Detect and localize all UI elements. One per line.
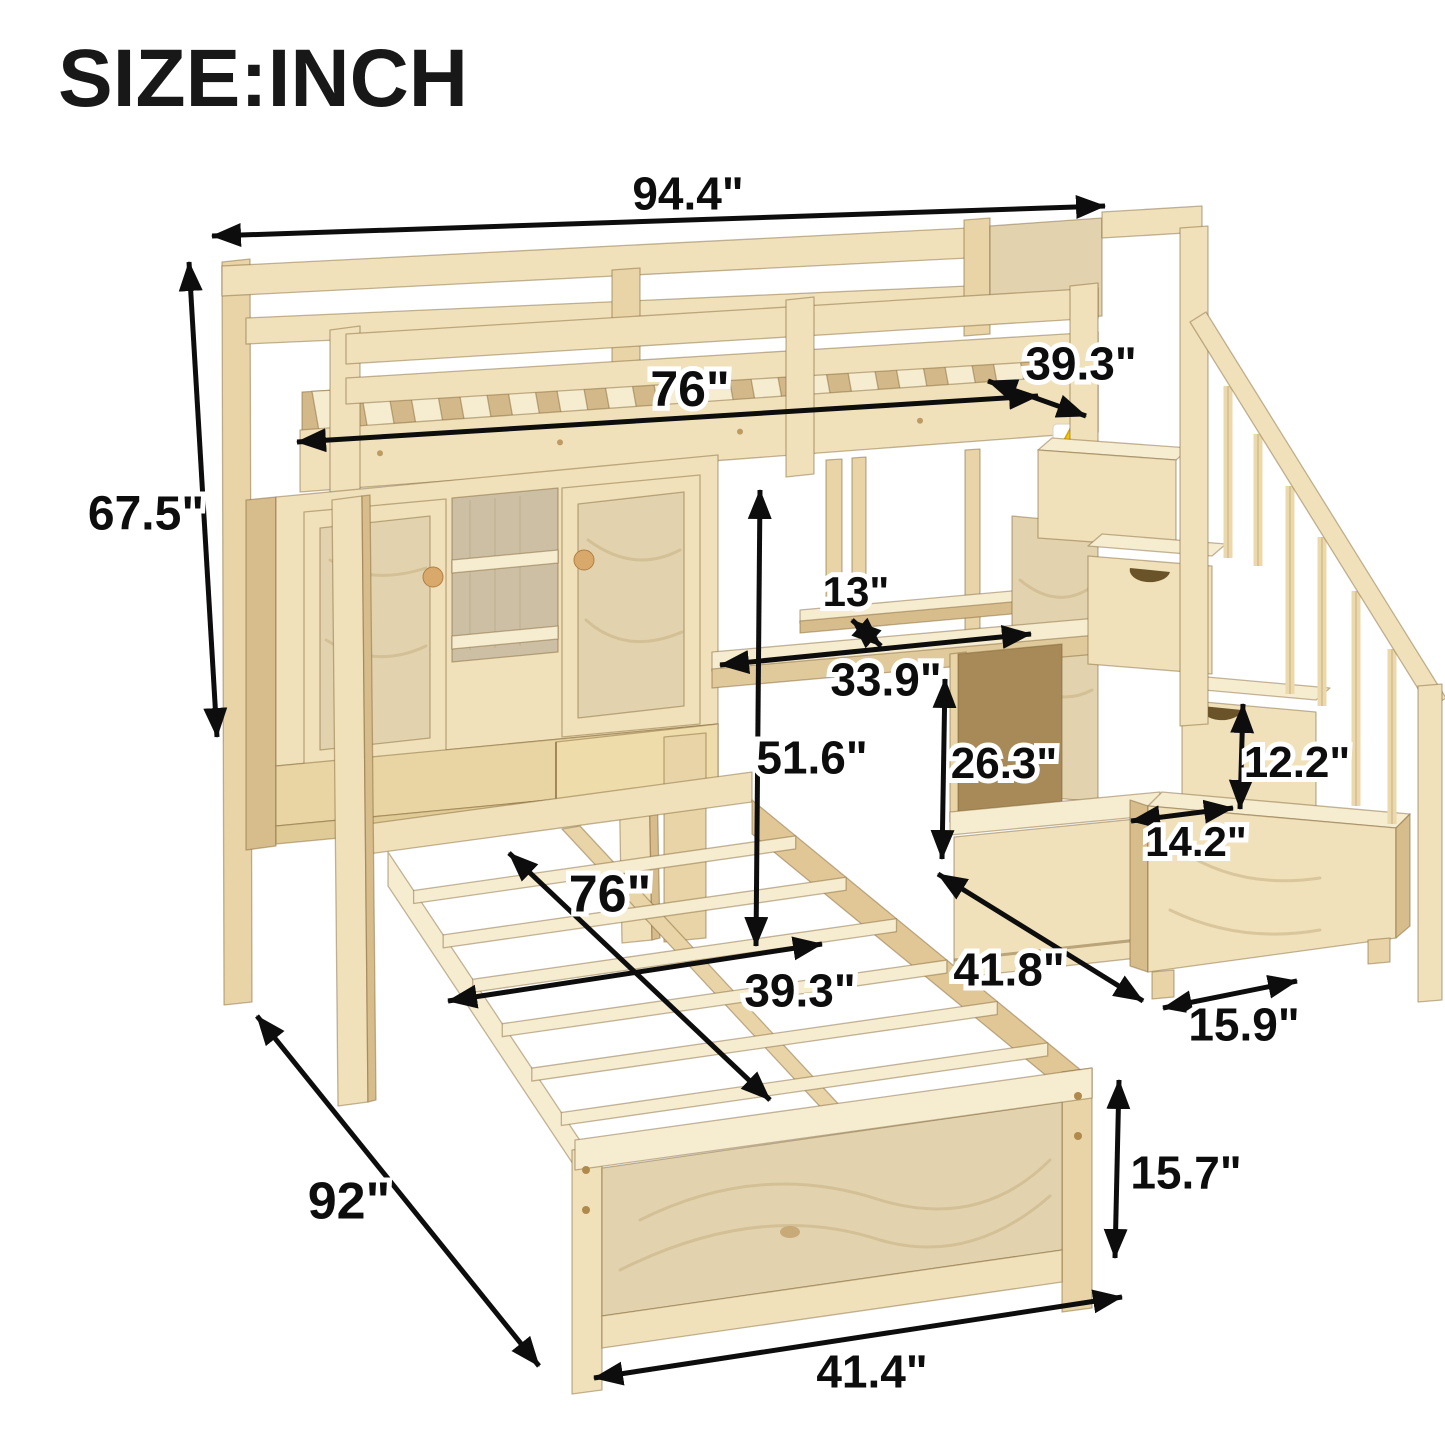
dimension-label: 76" xyxy=(650,361,729,417)
bed-dimension-illustration: !94.4"76"39.3"67.5"13"33.9"51.6"26.3"12.… xyxy=(0,0,1445,1445)
dimension-arrow xyxy=(942,679,945,859)
dimension-label: 39.3" xyxy=(744,965,855,1017)
dimension-arrow xyxy=(756,490,760,946)
dimension-label: 39.3" xyxy=(1025,338,1136,390)
dimension-total-depth: 92" xyxy=(257,1016,539,1366)
dimension-label: 41.8" xyxy=(953,944,1064,996)
dimension-label: 13" xyxy=(823,568,890,615)
dimension-arrow xyxy=(1115,1080,1119,1258)
dimension-stair-base-width: 15.9" xyxy=(1163,981,1300,1051)
dimension-footboard-height: 15.7" xyxy=(1115,1080,1242,1258)
dimension-label: 26.3" xyxy=(951,739,1058,788)
dimension-label: 51.6" xyxy=(756,732,867,784)
dimension-label: 12.2" xyxy=(1244,738,1351,787)
dimension-label: 94.4" xyxy=(632,168,743,220)
dimension-label: 92" xyxy=(308,1173,391,1231)
dimension-total-height: 67.5" xyxy=(88,262,217,737)
dimension-label: 76" xyxy=(569,866,652,924)
dimension-label: 14.2" xyxy=(1145,818,1247,865)
dimension-arrow xyxy=(1240,704,1243,809)
dimension-label: 33.9" xyxy=(830,654,941,706)
dimension-label: 15.9" xyxy=(1188,999,1299,1051)
dimension-arrow xyxy=(257,1016,539,1366)
dimension-label: 15.7" xyxy=(1130,1147,1241,1199)
dimension-label: 67.5" xyxy=(88,487,204,540)
size-diagram: SIZE:INCH !94.4"76"39.3"67.5"13"33.9"51.… xyxy=(0,0,1445,1445)
dimension-label: 41.4" xyxy=(816,1346,927,1398)
dimension-shelf-depth: 13" xyxy=(823,568,890,646)
